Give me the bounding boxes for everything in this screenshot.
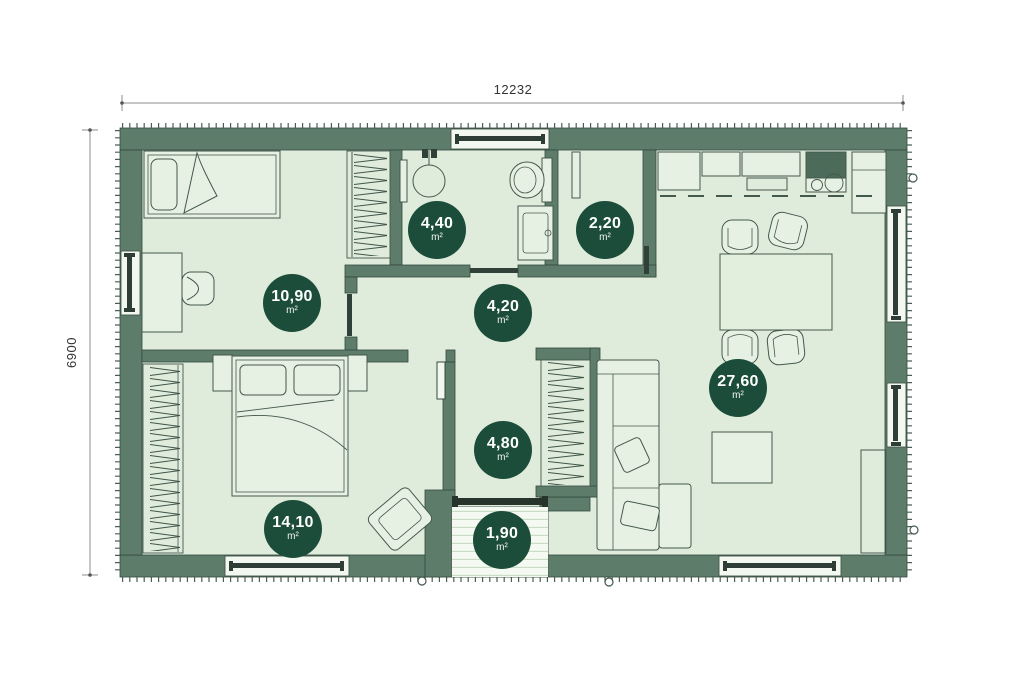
room-area-unit: m² [497,316,509,327]
bedroom1-door [347,294,352,336]
room-area-value: 2,20 [589,216,621,233]
room-area-value: 4,20 [487,299,519,316]
room-badge-entrance: 1,90 m² [473,511,531,569]
washing-machine [518,206,553,260]
kitchen-cabinet [658,152,700,190]
window-right-small [887,383,906,447]
kitchen-dark-unit [806,152,846,178]
dimension-width-label: 12232 [478,82,548,97]
room-area-value: 27,60 [717,374,759,391]
room-area-unit: m² [599,233,611,244]
room-area-unit: m² [287,532,299,543]
dining-table [720,254,832,330]
room-area-unit: m² [497,453,509,464]
room-area-value: 4,40 [421,216,453,233]
dimension-top [120,95,905,111]
room-area-unit: m² [496,543,508,554]
room-area-value: 4,80 [487,436,519,453]
room-area-value: 14,10 [272,515,314,532]
dining-chair [722,220,758,254]
nightstand [348,355,367,391]
kitchen-cabinet [742,152,800,176]
dimension-left [82,128,98,577]
room-area-value: 10,90 [271,289,313,306]
desk-chair [182,272,214,305]
double-bed [232,356,348,496]
room-badge-living-room: 27,60 m² [709,359,767,417]
room-area-unit: m² [286,306,298,317]
room-area-value: 1,90 [486,526,518,543]
room-badge-hallway: 4,20 m² [474,284,532,342]
closet-bedroom-2 [143,364,183,553]
window-bathroom-top [451,129,549,149]
room-badge-wc: 2,20 m² [576,201,634,259]
room-area-unit: m² [732,391,744,402]
window-living-bottom [719,556,841,576]
window-bedroom2-bottom [225,556,349,576]
hall-wardrobe [536,348,600,497]
kitchen-cabinet [702,152,740,176]
wc-shelf [572,152,580,198]
wc-door [644,246,649,274]
window-left [121,251,140,315]
coffee-table [712,432,772,483]
room-area-unit: m² [431,233,443,244]
room-badge-corridor: 4,80 m² [474,421,532,479]
bedroom2-door [437,362,445,399]
fridge [852,152,886,213]
window-right-large [887,206,906,322]
single-bed [144,151,280,218]
shelf [400,160,407,202]
floor-plan-drawing [0,0,1024,683]
bathroom-door [470,268,518,273]
room-badge-bathroom: 4,40 m² [408,201,466,259]
desk [142,253,182,332]
wardrobe-bedroom-1 [347,151,390,258]
floor-plan-page: 12232 6900 4,40 m² 2,20 m² 10,90 m² 4,20… [0,0,1024,683]
dimension-height-label: 6900 [64,337,79,368]
dining-chair [766,328,805,366]
room-badge-bedroom-2: 14,10 m² [264,500,322,558]
room-badge-bedroom-1: 10,90 m² [263,274,321,332]
nightstand [213,355,232,391]
